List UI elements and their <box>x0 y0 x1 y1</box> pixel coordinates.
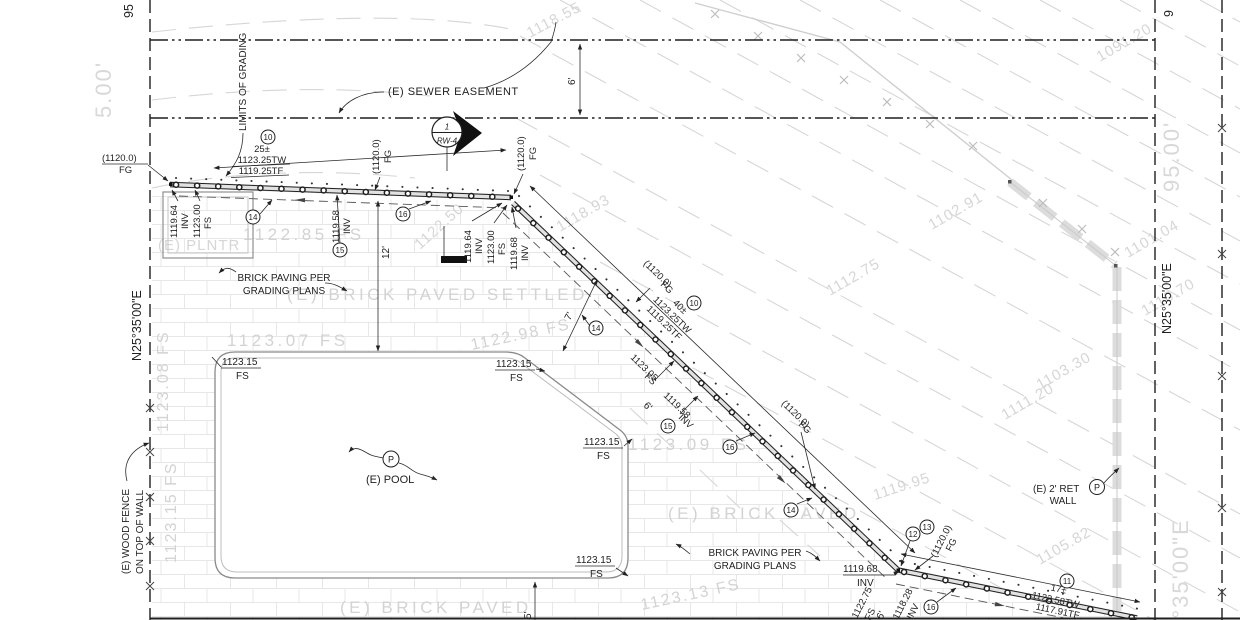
bearing-right-gray: N25°35'00"E <box>1168 518 1193 620</box>
keynote-14-a: 14 <box>246 210 260 224</box>
inv-unit-a: INV <box>180 213 191 230</box>
inv-unit-b: INV <box>342 218 353 235</box>
ret-wall-label-line2: WALL <box>1050 496 1077 507</box>
pool-fs-b-unit: FS <box>510 373 523 384</box>
lot-dim-right-gray: 95.00' <box>1159 121 1184 192</box>
pool-fs-c-value: 1123.15 <box>584 437 620 448</box>
wood-fence-label-line1: (E) WOOD FENCE <box>121 489 132 574</box>
wall-top-tw: 1123.25TW <box>238 155 286 166</box>
fs-unit-a: FS <box>203 217 214 229</box>
distance-right-top: 9 <box>1162 10 1176 17</box>
dim-12ft: 12' <box>381 246 392 259</box>
lot-dim-left-gray: 5.00' <box>91 61 116 118</box>
svg-text:14: 14 <box>787 506 796 515</box>
svg-text:16: 16 <box>399 210 408 219</box>
existing-planter: (E) PLNTR <box>158 237 240 254</box>
pool-fs-c-unit: FS <box>597 451 610 462</box>
pool-fs-d-value: 1123.15 <box>576 555 612 566</box>
svg-text:14: 14 <box>249 213 258 222</box>
fg-1-value: (1120.0) <box>102 153 137 164</box>
svg-text:15: 15 <box>336 246 345 255</box>
brick-note-2-line1: BRICK PAVING PER <box>709 548 802 559</box>
svg-text:14: 14 <box>592 324 601 333</box>
pool-fs-d-unit: FS <box>590 569 603 580</box>
inv-1119-64-b: 1119.64 <box>463 230 474 263</box>
keynote-16-b: 16 <box>723 440 737 454</box>
pool-label: (E) POOL <box>366 474 414 486</box>
svg-text:13: 13 <box>923 523 932 532</box>
svg-text:10: 10 <box>690 299 699 308</box>
spot-1123-07: 1123.07 FS <box>227 331 349 350</box>
distance-left-top: 95 <box>122 4 136 18</box>
keynote-14-c: 14 <box>784 503 798 517</box>
brick-note-1-line2: GRADING PLANS <box>243 286 326 297</box>
ret-wall-symbol-letter: P <box>1094 483 1100 493</box>
bearing-left: N25°35'00"E <box>130 290 144 361</box>
grading-plan-sheet: 1122.85 FS (E) BRICK PAVED SETTLED 1123.… <box>0 0 1240 620</box>
detail-sheet: RW-4 <box>437 137 458 146</box>
svg-text:15: 15 <box>664 422 673 431</box>
pool-symbol: P <box>383 451 399 467</box>
detail-number: 1 <box>445 123 449 132</box>
inv-1119-68-b: 1119.68 <box>843 564 878 575</box>
wall-top-length: 25± <box>254 144 270 155</box>
fg-1-unit: FG <box>119 165 132 176</box>
grading-plan-canvas: 1122.85 FS (E) BRICK PAVED SETTLED 1123.… <box>0 0 1240 620</box>
pool-fs-a-value: 1123.15 <box>222 357 258 368</box>
keynote-14-b: 14 <box>589 321 603 335</box>
dim-6ft-easement: 6' <box>567 77 578 85</box>
svg-text:16: 16 <box>726 443 735 452</box>
pool-fs-a-unit: FS <box>236 371 249 382</box>
ret-wall-label-line1: (E) 2' RET <box>1033 484 1079 495</box>
svg-text:10: 10 <box>264 133 273 142</box>
fs-1123-00-b: 1123.00 <box>486 230 497 264</box>
fg-2-value: (1120.0) <box>371 139 382 174</box>
spot-1123-08-vert: 1123.08 FS <box>155 330 172 432</box>
wood-fence-label-line2: ON TOP OF WALL <box>135 489 146 574</box>
existing-brick-paved-2: (E) BRICK PAVED <box>340 598 532 617</box>
fg-2-unit: FG <box>383 150 394 163</box>
existing-brick-settled: (E) BRICK PAVED SETTLED <box>287 285 588 304</box>
keynote-13: 13 <box>920 520 934 534</box>
sewer-easement-label: (E) SEWER EASEMENT <box>388 86 519 98</box>
inv-1119-64-a: 1119.64 <box>169 205 180 238</box>
inv-unit-c: INV <box>474 238 485 255</box>
bearing-right: N25°35'00"E <box>1160 263 1174 334</box>
fg-3-value: (1120.0) <box>516 136 527 171</box>
brick-note-2-line2: GRADING PLANS <box>714 561 797 572</box>
pool-fs-b-value: 1123.15 <box>496 359 532 370</box>
keynote-10-top: 10 <box>261 130 275 144</box>
limits-of-grading-label: LIMITS OF GRADING <box>238 32 249 131</box>
fs-1123-00-a: 1123.00 <box>192 204 203 238</box>
keynote-15-b: 15 <box>661 419 675 433</box>
keynote-16-a: 16 <box>396 207 410 221</box>
ret-wall-symbol: P <box>1090 480 1105 495</box>
inv-1119-68-a: 1119.68 <box>509 237 520 270</box>
spot-1123-15-vert: 1123.15 FS <box>163 461 180 563</box>
keynote-16-c: 16 <box>924 600 938 614</box>
keynote-12: 12 <box>906 527 920 541</box>
keynote-15-a: 15 <box>333 243 347 257</box>
wall-top-tf: 1119.25TF <box>239 166 284 177</box>
inv-1119-58-a: 1119.58 <box>331 210 342 243</box>
fg-3-unit: FG <box>528 147 539 160</box>
pool-symbol-letter: P <box>388 455 394 465</box>
svg-text:16: 16 <box>927 603 936 612</box>
fs-unit-b: FS <box>497 243 508 255</box>
brick-note-1-line1: BRICK PAVING PER <box>238 273 331 284</box>
svg-text:12: 12 <box>909 530 918 539</box>
inv-unit-d: INV <box>520 245 531 262</box>
